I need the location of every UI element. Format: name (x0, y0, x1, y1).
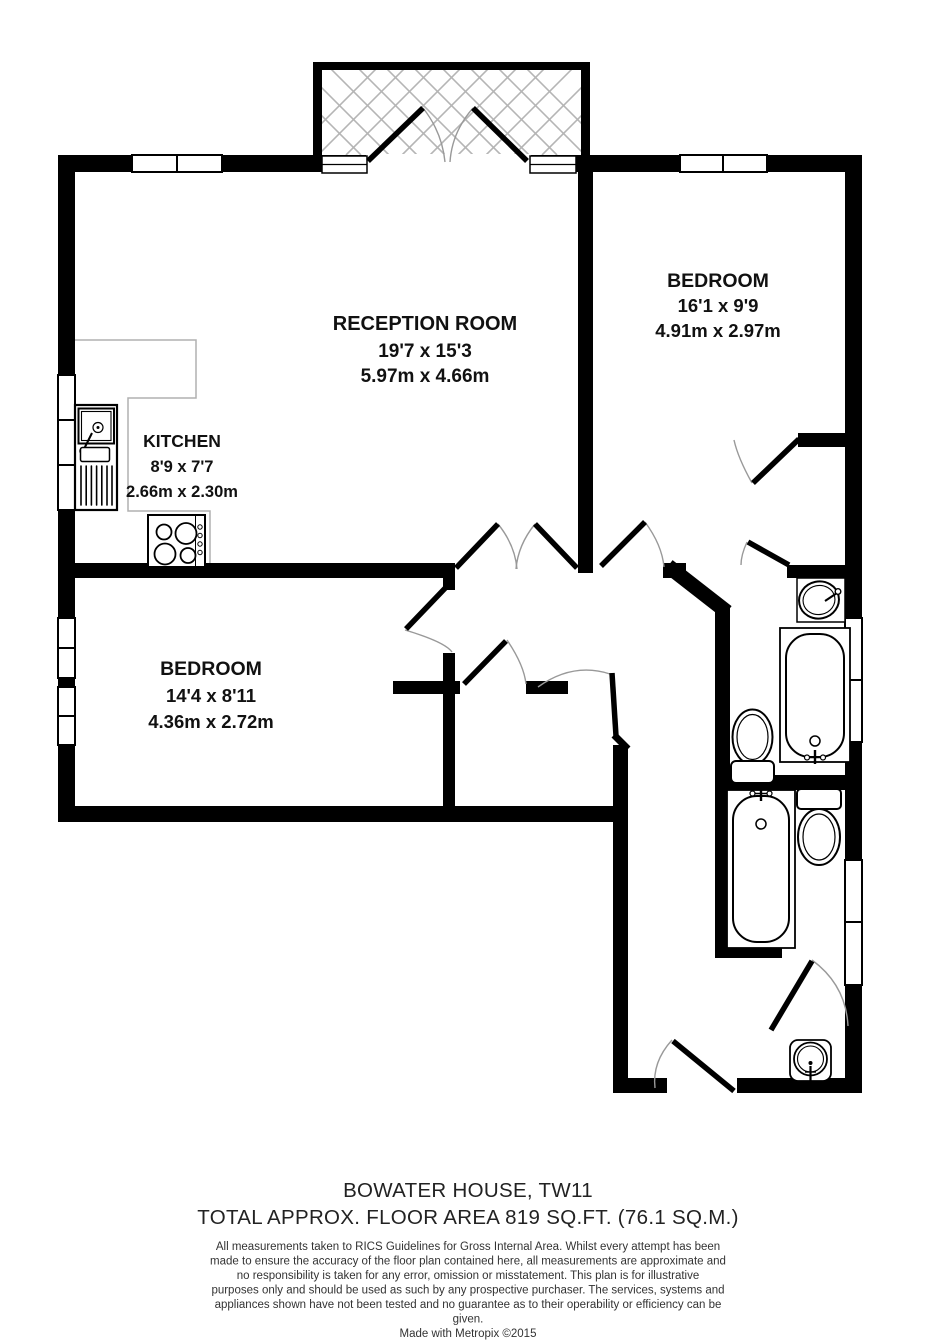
bedroom2-door-swing (405, 581, 452, 652)
window (845, 860, 862, 985)
room-name: BEDROOM (160, 658, 262, 680)
room-dims-imperial: 14'4 x 8'11 (166, 685, 256, 706)
room-name: BEDROOM (667, 270, 769, 292)
french-door-panel (322, 156, 367, 173)
balcony-door-swing (368, 108, 527, 162)
disclaimer-line: made to ensure the accuracy of the floor… (210, 1256, 726, 1268)
disclaimer-line: appliances shown have not been tested an… (215, 1299, 722, 1311)
room-dims-metric: 4.36m x 2.72m (148, 711, 273, 732)
window (58, 618, 75, 678)
bedroom1-door-swing (601, 439, 799, 567)
window (132, 155, 222, 172)
french-door-panel (530, 156, 576, 173)
balcony-opening (366, 154, 531, 173)
disclaimer-line: given. (453, 1314, 484, 1326)
room-name: KITCHEN (143, 431, 221, 451)
bathroom2-door-swing (771, 960, 848, 1030)
floorplan-drawing: RECEPTION ROOM 19'7 x 15'3 5.97m x 4.66m… (0, 0, 940, 1344)
window (58, 375, 75, 510)
bathroom1-door-swing (741, 542, 789, 565)
room-dims-imperial: 8'9 x 7'7 (151, 458, 214, 476)
toilet-icon (797, 789, 841, 865)
room-dims-metric: 2.66m x 2.30m (126, 483, 238, 501)
disclaimer-line: no responsibility is taken for any error… (237, 1270, 700, 1282)
room-dims-metric: 5.97m x 4.66m (361, 366, 490, 387)
toilet-icon (731, 710, 774, 784)
metropix-credit: Made with Metropix ©2015 (400, 1328, 537, 1340)
hob-icon (148, 515, 205, 567)
closet-door-swing (464, 640, 628, 749)
floorplan-page: RECEPTION ROOM 19'7 x 15'3 5.97m x 4.66m… (0, 0, 940, 1344)
room-label-bedroom1: BEDROOM 16'1 x 9'9 4.91m x 2.97m (655, 270, 780, 341)
balcony (261, 55, 642, 155)
wash-basin-icon (790, 1040, 831, 1081)
disclaimer-line: All measurements taken to RICS Guideline… (216, 1241, 720, 1253)
kitchen-sink-icon (75, 405, 117, 510)
room-dims-imperial: 16'1 x 9'9 (678, 295, 759, 316)
room-label-reception: RECEPTION ROOM 19'7 x 15'3 5.97m x 4.66m (333, 313, 517, 387)
wash-basin-icon (796, 578, 845, 623)
bathtub-icon (727, 788, 795, 948)
footer: BOWATER HOUSE, TW11 TOTAL APPROX. FLOOR … (197, 1179, 739, 1340)
total-area: TOTAL APPROX. FLOOR AREA 819 SQ.FT. (76.… (197, 1206, 739, 1229)
disclaimer-line: purposes only and should be used as such… (211, 1285, 724, 1297)
room-label-kitchen: KITCHEN 8'9 x 7'7 2.66m x 2.30m (126, 431, 238, 501)
window (680, 155, 767, 172)
room-dims-imperial: 19'7 x 15'3 (378, 341, 472, 362)
bathtub-icon (780, 628, 850, 764)
building-title: BOWATER HOUSE, TW11 (343, 1179, 593, 1202)
window (58, 687, 75, 745)
room-name: RECEPTION ROOM (333, 313, 517, 335)
room-dims-metric: 4.91m x 2.97m (655, 320, 780, 341)
room-label-bedroom2: BEDROOM 14'4 x 8'11 4.36m x 2.72m (148, 658, 273, 732)
reception-double-door-swing (456, 524, 577, 569)
